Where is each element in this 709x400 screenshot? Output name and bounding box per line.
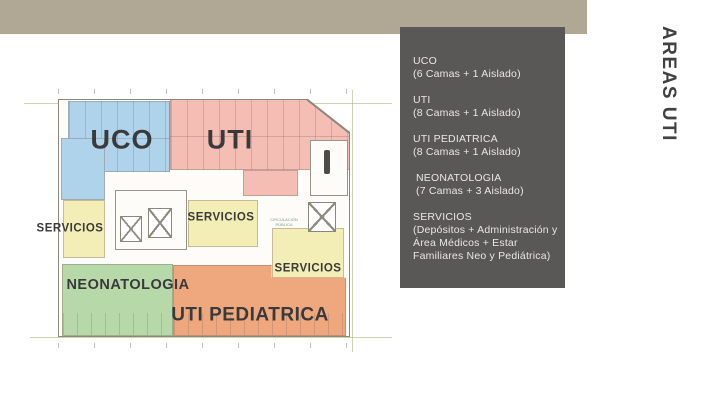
panel-item-title: SERVICIOS <box>413 211 558 224</box>
panel-item-title: UCO <box>413 55 558 68</box>
label-uco: UCO <box>91 127 154 154</box>
panel-item-title: NEONATOLOGIA <box>416 172 558 185</box>
panel-item-uco: UCO (6 Camas + 1 Aislado) <box>413 55 558 81</box>
label-uti-pediatrica: UTI PEDIATRICA <box>171 306 329 325</box>
elevator-icon <box>120 216 142 242</box>
elevator-icon <box>308 202 336 232</box>
label-uti: UTI <box>207 127 254 154</box>
elevator-core <box>115 190 187 250</box>
stair-core <box>310 140 348 196</box>
panel-item-detail: (Depósitos + Administración y Área Médic… <box>413 224 558 263</box>
panel-item-uti: UTI (8 Camas + 1 Aislado) <box>413 94 558 120</box>
panel-item-title: UTI PEDIATRICA <box>413 133 558 146</box>
survey-line-horizontal-bottom <box>30 337 392 338</box>
label-servicios-east: SERVICIOS <box>275 263 342 275</box>
panel-item-detail: (8 Camas + 1 Aislado) <box>413 146 558 159</box>
label-servicios-west: SERVICIOS <box>37 223 104 235</box>
panel-item-detail: (7 Camas + 3 Aislado) <box>416 185 558 198</box>
region-neonatologia <box>62 264 173 336</box>
slide-title-vertical: AREAS UTI <box>651 26 679 166</box>
plan-ticks-bottom <box>58 343 350 348</box>
panel-item-servicios: SERVICIOS (Depósitos + Administración y … <box>413 211 558 263</box>
label-servicios-center: SERVICIOS <box>188 212 255 224</box>
survey-line-vertical-right <box>352 90 353 352</box>
panel-item-neonatologia: NEONATOLOGIA (7 Camas + 3 Aislado) <box>413 172 558 198</box>
panel-item-detail: (6 Camas + 1 Aislado) <box>413 68 558 81</box>
areas-info-panel: UCO (6 Camas + 1 Aislado) UTI (8 Camas +… <box>400 27 565 288</box>
panel-item-detail: (8 Camas + 1 Aislado) <box>413 107 558 120</box>
stair-shaft <box>324 150 330 174</box>
panel-item-uti-pediatrica: UTI PEDIATRICA (8 Camas + 1 Aislado) <box>413 133 558 159</box>
annotation-circulacion-publica: CIRCULACIÓN PÚBLICA <box>266 217 302 227</box>
label-neonatologia: NEONATOLOGIA <box>66 278 189 293</box>
elevator-icon <box>148 208 172 238</box>
plan-ticks-top <box>58 89 350 94</box>
slide: UCO UTI SERVICIOS SERVICIOS SERVICIOS NE… <box>0 0 709 400</box>
region-uti-annex <box>243 170 298 196</box>
panel-item-title: UTI <box>413 94 558 107</box>
